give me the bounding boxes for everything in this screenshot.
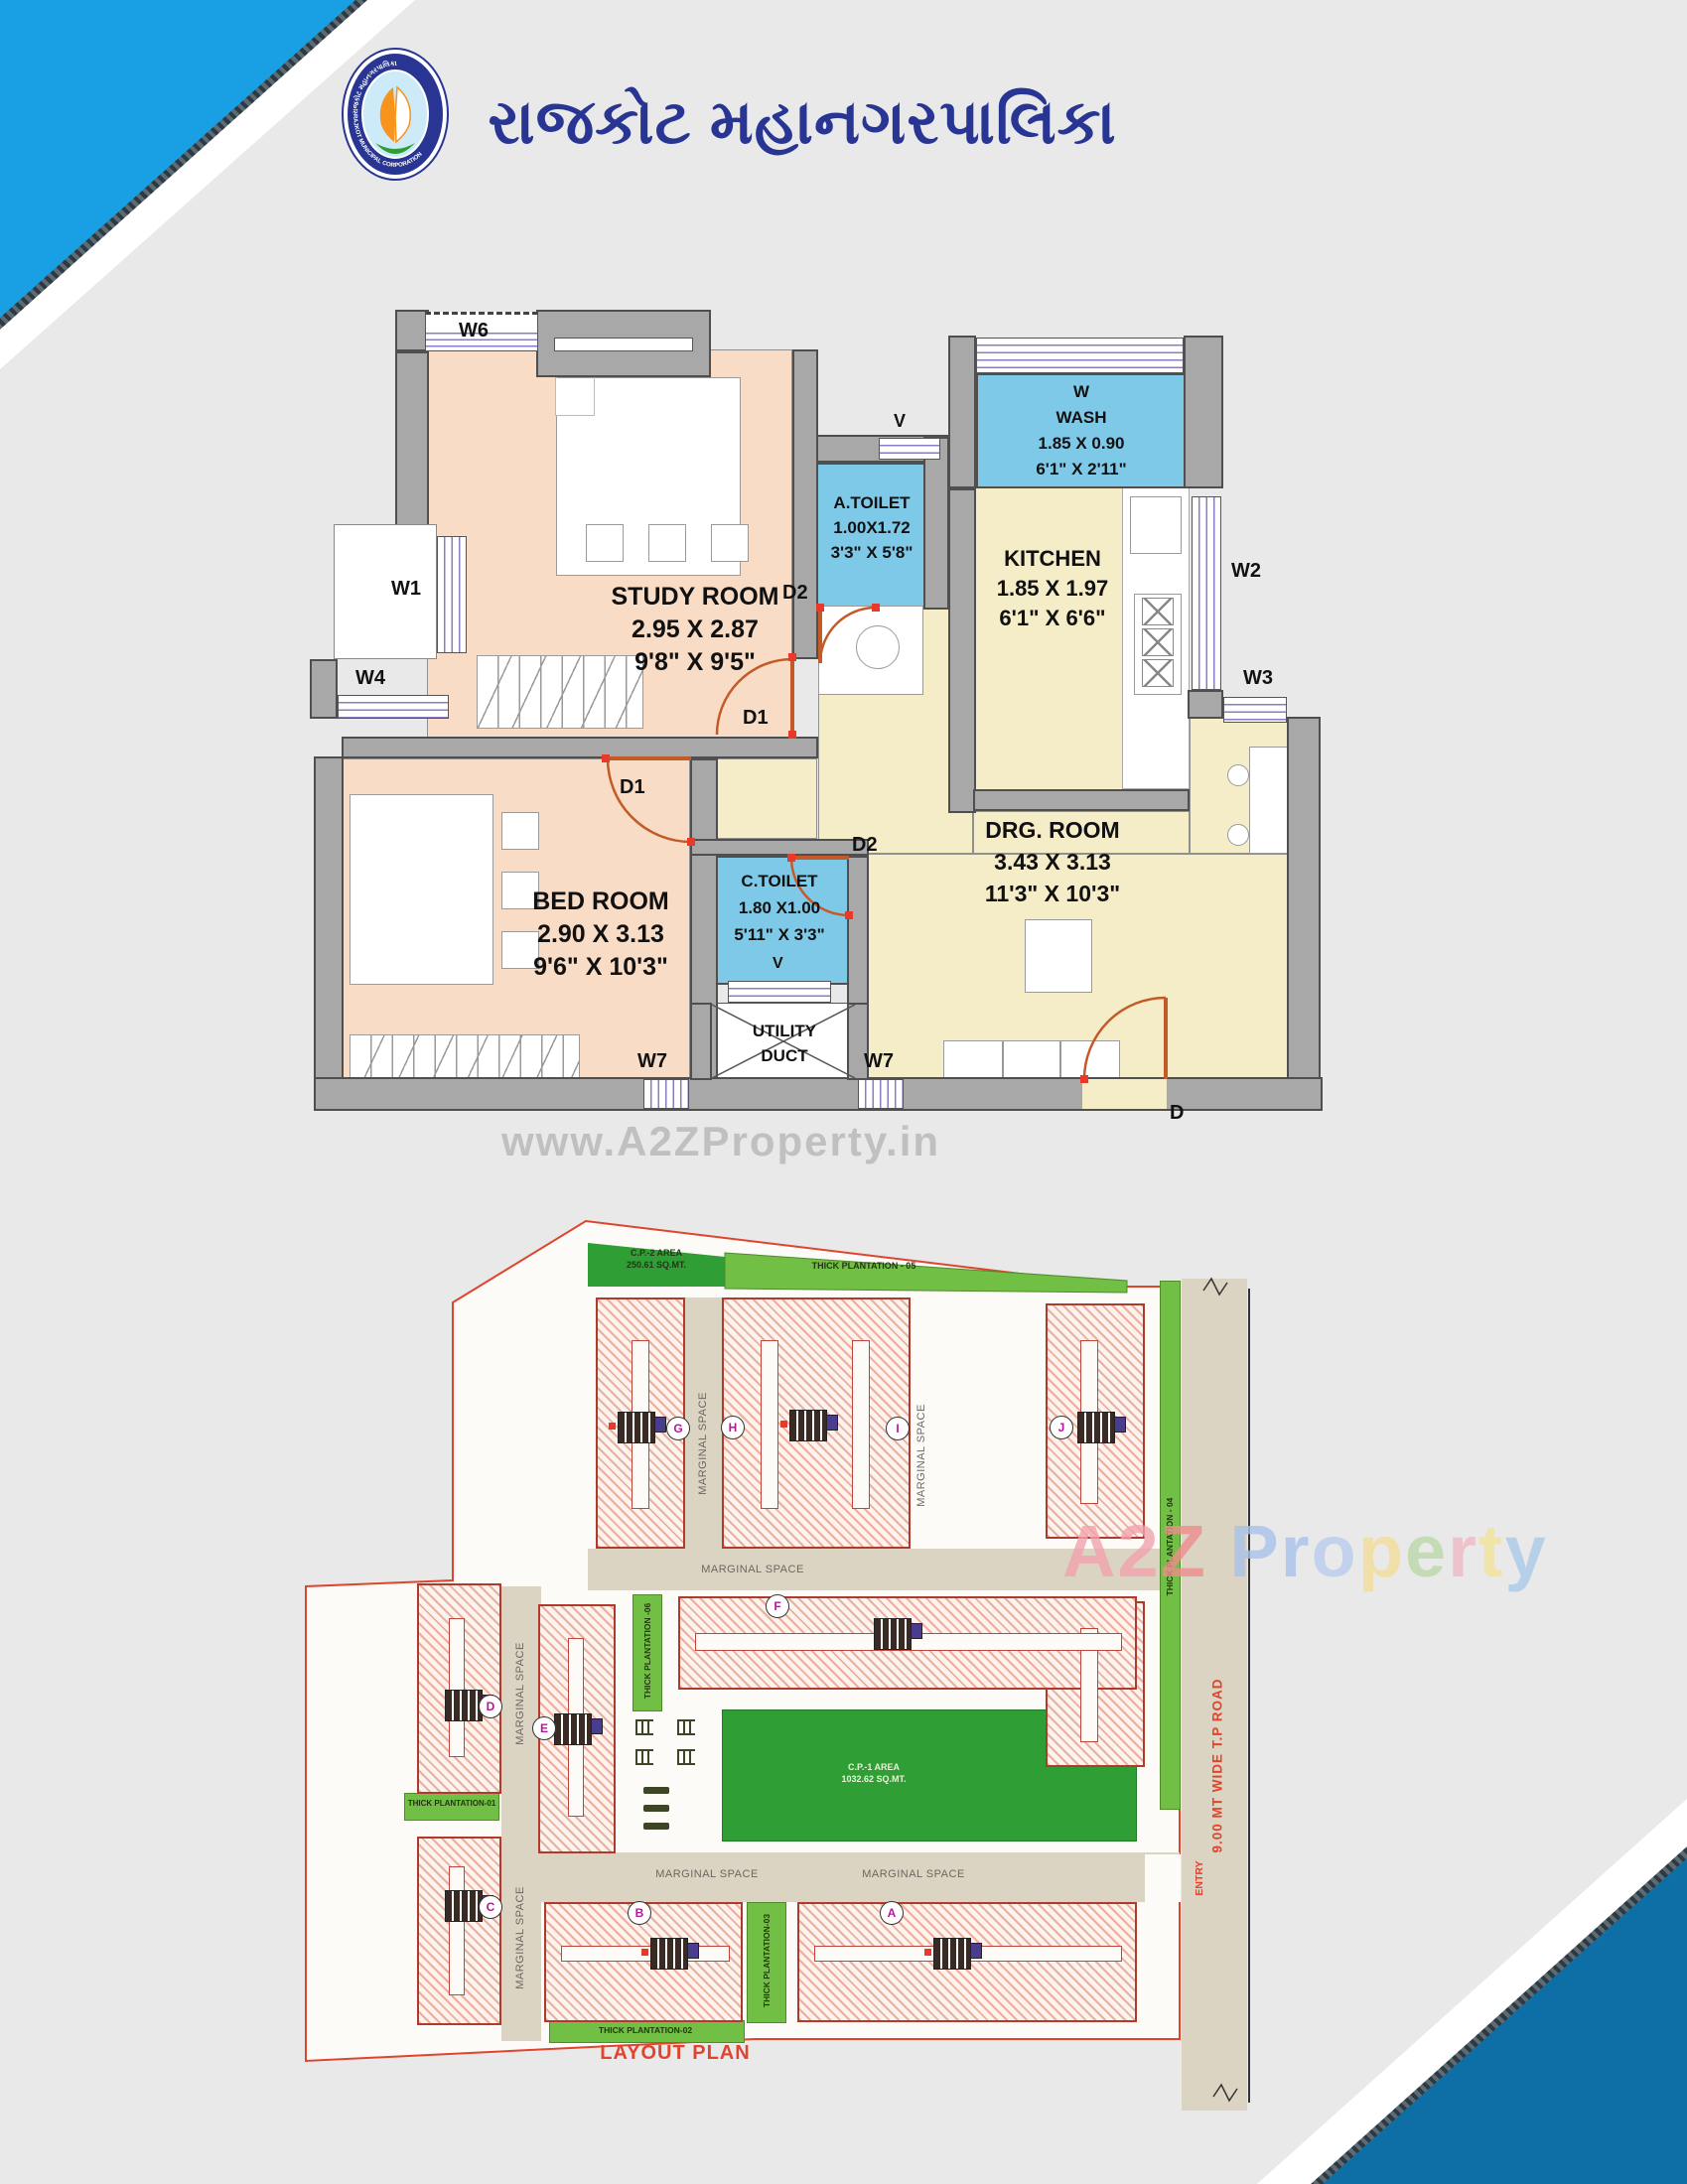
page: રાજકોટ મહાનગરપાલિકા RAJKOT MUNICIPAL COR… [0, 0, 1687, 2184]
block-label-J: J [1050, 1416, 1073, 1439]
stair-icon [554, 1713, 592, 1745]
bench-icon [677, 1719, 695, 1735]
door-label-d: D [1170, 1102, 1184, 1125]
room-label-drg: DRG. ROOM 3.43 X 3.13 11'3" X 10'3" [914, 814, 1192, 909]
marginal-space-label: MARGINAL SPACE [514, 1614, 526, 1773]
stair-icon [650, 1938, 688, 1970]
garden-bar-icon [643, 1787, 669, 1794]
watermark-text: www.A2ZProperty.in [501, 1118, 940, 1165]
window-label-w6: W6 [459, 320, 489, 342]
stair-icon [618, 1412, 655, 1443]
room-label-kitchen: KITCHEN 1.85 X 1.97 6'1" X 6'6" [953, 544, 1152, 633]
bench-icon [635, 1749, 653, 1765]
building-cut [761, 1340, 778, 1509]
door-jamb [687, 838, 695, 846]
room-label-utility: UTILITY DUCT [713, 1019, 856, 1068]
vent-label-v: V [773, 955, 783, 973]
cp2-label: C.P.-2 AREA250.61 SQ.MT. [592, 1247, 721, 1271]
stair-icon [874, 1618, 912, 1650]
road-label: 9.00 MT WIDE T.P ROAD [1210, 1637, 1225, 1895]
tp05-label: THICK PLANTATION - 05 [740, 1261, 988, 1271]
door-label-d1: D1 [620, 776, 645, 799]
bench-icon [635, 1719, 653, 1735]
block-label-E: E [532, 1716, 556, 1740]
door-label-d2: D2 [782, 582, 808, 605]
building-cut [449, 1618, 465, 1757]
tp06-label: THICK PLANTATION -06 [642, 1596, 652, 1706]
door-jamb [872, 604, 880, 612]
room-label-c-toilet: C.TOILET 1.80 X1.00 5'11" X 3'3" [700, 868, 859, 948]
entry-label: ENTRY [1194, 1848, 1205, 1908]
room-label-bed: BED ROOM 2.90 X 3.13 9'6" X 10'3" [467, 886, 735, 984]
marginal-space-label: MARGINAL SPACE [514, 1858, 526, 2017]
room-label-a-toilet: A.TOILET 1.00X1.72 3'3" X 5'8" [806, 490, 937, 565]
watermark-logo-text: A2Z Property [1062, 1509, 1548, 1593]
block-label-B: B [628, 1901, 651, 1925]
tp02-label: THICK PLANTATION-02 [551, 2025, 740, 2035]
window-label-w4: W4 [355, 667, 385, 690]
door-label-d1: D1 [743, 707, 769, 730]
garden-bar-icon [643, 1823, 669, 1830]
garden-bar-icon [643, 1805, 669, 1812]
cp1-label: C.P.-1 AREA1032.62 SQ.MT. [784, 1761, 963, 1785]
door-jamb [602, 754, 610, 762]
marginal-space-label: MARGINAL SPACE [697, 1364, 709, 1523]
tp03-label: THICK PLANTATION-03 [762, 1903, 772, 2018]
block-label-A: A [880, 1901, 904, 1925]
stair-icon [445, 1690, 483, 1721]
block-label-F: F [766, 1594, 789, 1618]
door-label-d2: D2 [852, 834, 878, 857]
block-label-G: G [666, 1417, 690, 1440]
marginal-space-label: MARGINAL SPACE [673, 1564, 832, 1575]
block-label-D: D [479, 1695, 502, 1718]
stair-icon [789, 1410, 827, 1441]
marginal-space-label: MARGINAL SPACE [834, 1868, 993, 1880]
stair-icon [1077, 1412, 1115, 1443]
building-cut [852, 1340, 870, 1509]
window-label-w1: W1 [391, 578, 421, 601]
building-cut [449, 1866, 465, 1995]
entry-gap [1145, 1854, 1181, 1902]
block-label-C: C [479, 1895, 502, 1919]
tp01-label: THICK PLANTATION-01 [404, 1799, 499, 1808]
block-label-H: H [721, 1416, 745, 1439]
vent-label-v: V [894, 411, 906, 432]
marginal-space-label: MARGINAL SPACE [915, 1376, 927, 1535]
door-jamb [788, 731, 796, 739]
stair-icon [933, 1938, 971, 1970]
marginal-space-label: MARGINAL SPACE [628, 1868, 786, 1880]
layout-plan-title: LAYOUT PLAN [566, 2042, 784, 2065]
bench-icon [677, 1749, 695, 1765]
door-jamb [1080, 1075, 1088, 1083]
block-label-I: I [886, 1417, 910, 1440]
window-label-w2: W2 [1231, 560, 1261, 583]
window-label-w3: W3 [1243, 667, 1273, 690]
tp05-green [725, 1253, 1127, 1293]
window-label-w7: W7 [637, 1050, 667, 1073]
window-label-w7: W7 [864, 1050, 894, 1073]
room-label-wash: W WASH 1.85 X 0.90 6'1" X 2'11" [976, 379, 1187, 482]
stair-icon [445, 1890, 483, 1922]
door-jamb [787, 854, 795, 862]
